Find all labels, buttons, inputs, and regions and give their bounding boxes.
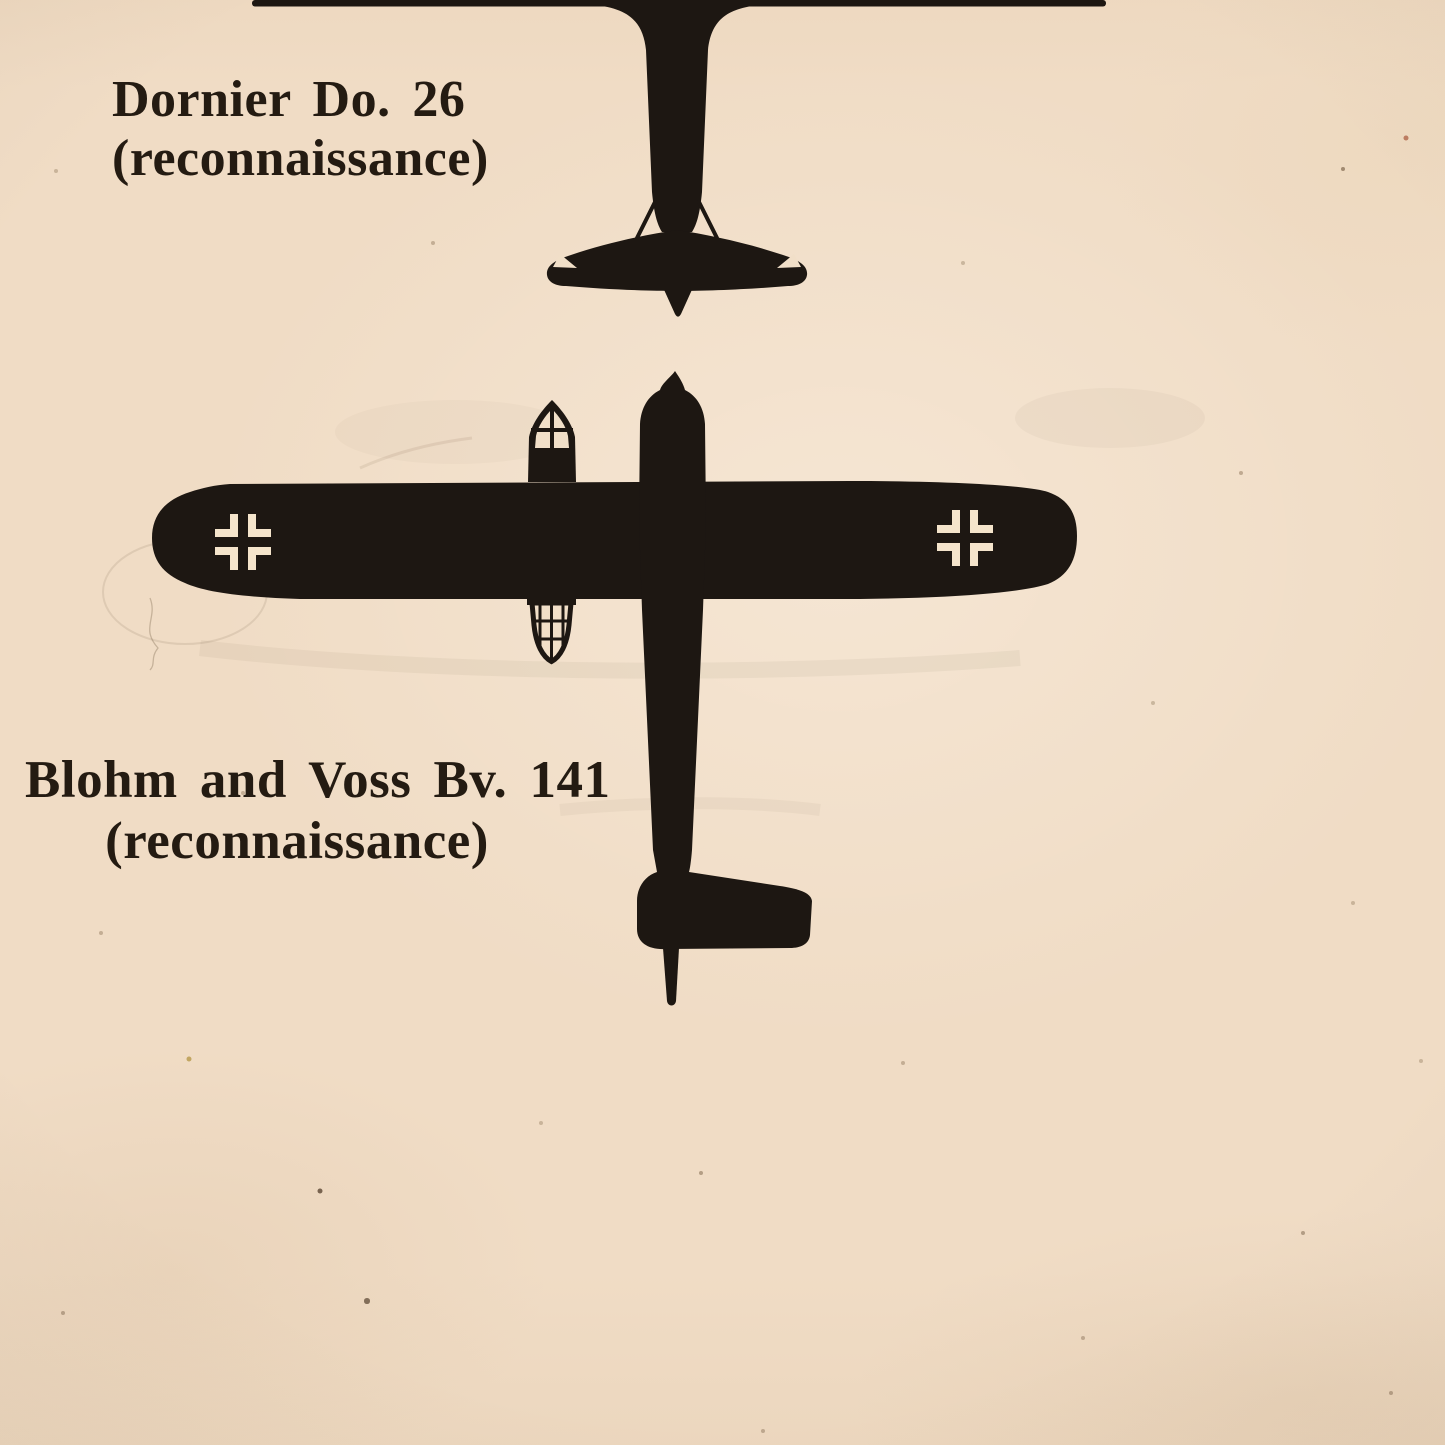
do26-tailplane	[547, 230, 807, 291]
paper-specks-texture	[0, 0, 2, 2]
aircraft-role: (reconnaissance)	[112, 129, 489, 188]
blohm-and-voss-bv-141-plan-silhouette	[0, 340, 1445, 1040]
aircraft-role: (reconnaissance)	[22, 811, 572, 872]
aircraft-label-bv141: Blohm and Voss Bv. 141 (reconnaissance)	[22, 750, 572, 872]
bv141-fuselage-boom	[637, 371, 812, 949]
bv141-tail-skid	[663, 948, 679, 1006]
do26-ventral-fin	[661, 283, 695, 317]
aircraft-name: Blohm and Voss Bv. 141	[22, 750, 572, 811]
aircraft-name: Dornier Do. 26	[112, 70, 489, 129]
do26-fuselage	[593, 0, 761, 232]
scanned-book-page: Dornier Do. 26 (reconnaissance)	[0, 0, 1445, 1445]
aircraft-label-do26: Dornier Do. 26 (reconnaissance)	[112, 70, 489, 188]
bv141-wing	[152, 481, 1077, 599]
